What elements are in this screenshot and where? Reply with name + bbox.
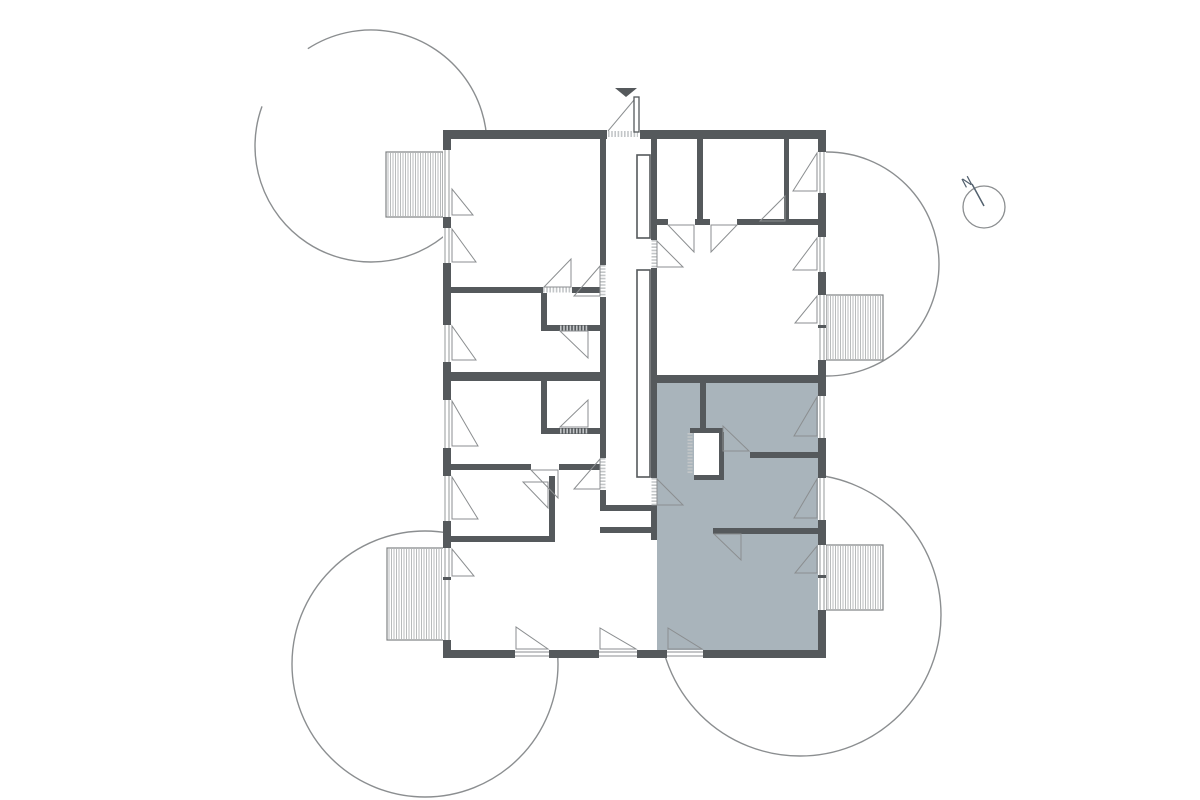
entrance-door-leaf [634,97,639,132]
wall-segment [600,139,606,265]
wall-segment [541,381,547,434]
window [818,295,826,325]
wall-segment [818,193,826,237]
stair-shaft [637,155,650,238]
stair-shaft-group [637,155,650,477]
wall-segment [818,575,826,578]
wall-segment [818,139,826,152]
window [443,580,451,640]
wall-segment [549,650,599,658]
wall-segment [697,139,703,225]
wall-segment [818,360,826,396]
window [443,325,451,362]
window [818,478,826,520]
window [443,150,451,217]
window [818,545,826,575]
wall-segment [737,219,818,225]
floor-plan-canvas: N [0,0,1200,800]
window [443,228,451,263]
wall-segment [443,448,451,476]
wall-segment [600,505,657,511]
window [667,650,703,658]
wall-segment [651,268,657,478]
window [443,476,451,521]
window [443,400,451,448]
wall-segment [818,438,826,478]
wall-segment [700,383,706,432]
wall-segment [750,452,818,458]
wall-segment [637,650,667,658]
floor-plan-viewer: N [0,0,1200,800]
wall-segment [600,527,657,533]
closet-patch [694,432,720,476]
wall-segment [695,219,710,225]
wall-segment [818,520,826,545]
wall-segment [549,476,555,536]
window [818,396,826,438]
window [818,152,826,193]
wall-segment [600,490,606,505]
window [818,328,826,360]
wall-segment [451,287,543,293]
wall-segment [443,139,451,150]
window [818,578,826,610]
stair-shaft [637,270,650,477]
balcony-deck [386,152,443,217]
wall-segment [451,536,555,542]
wall-segment [818,272,826,295]
window [515,650,549,658]
wall-segment [443,130,607,139]
highlighted-unit-fill [657,383,818,650]
balcony-deck [826,295,883,360]
wall-segment [703,650,826,658]
wall-segment [451,464,531,470]
wall-segment [559,464,600,470]
window [443,548,451,577]
wall-segment [443,217,451,228]
window [818,237,826,272]
wall-segment [657,219,668,225]
wall-segment [443,362,451,400]
wall-segment [690,428,723,433]
wall-segment [651,506,657,540]
highlighted-apartment [657,383,818,650]
balcony-deck [826,545,883,610]
wall-segment [713,528,818,534]
wall-segment [451,372,600,381]
wall-segment [443,577,451,580]
wall-segment [443,263,451,325]
wall-segment [694,475,724,480]
wall-segment [657,375,818,383]
wall-segment [572,287,600,293]
balcony-deck [387,548,445,640]
wall-segment [443,650,515,658]
window [599,650,637,658]
wall-segment [600,297,606,458]
wall-segment [640,130,826,139]
wall-segment [443,521,451,548]
wall-segment [818,325,826,328]
wall-segment [651,139,657,240]
